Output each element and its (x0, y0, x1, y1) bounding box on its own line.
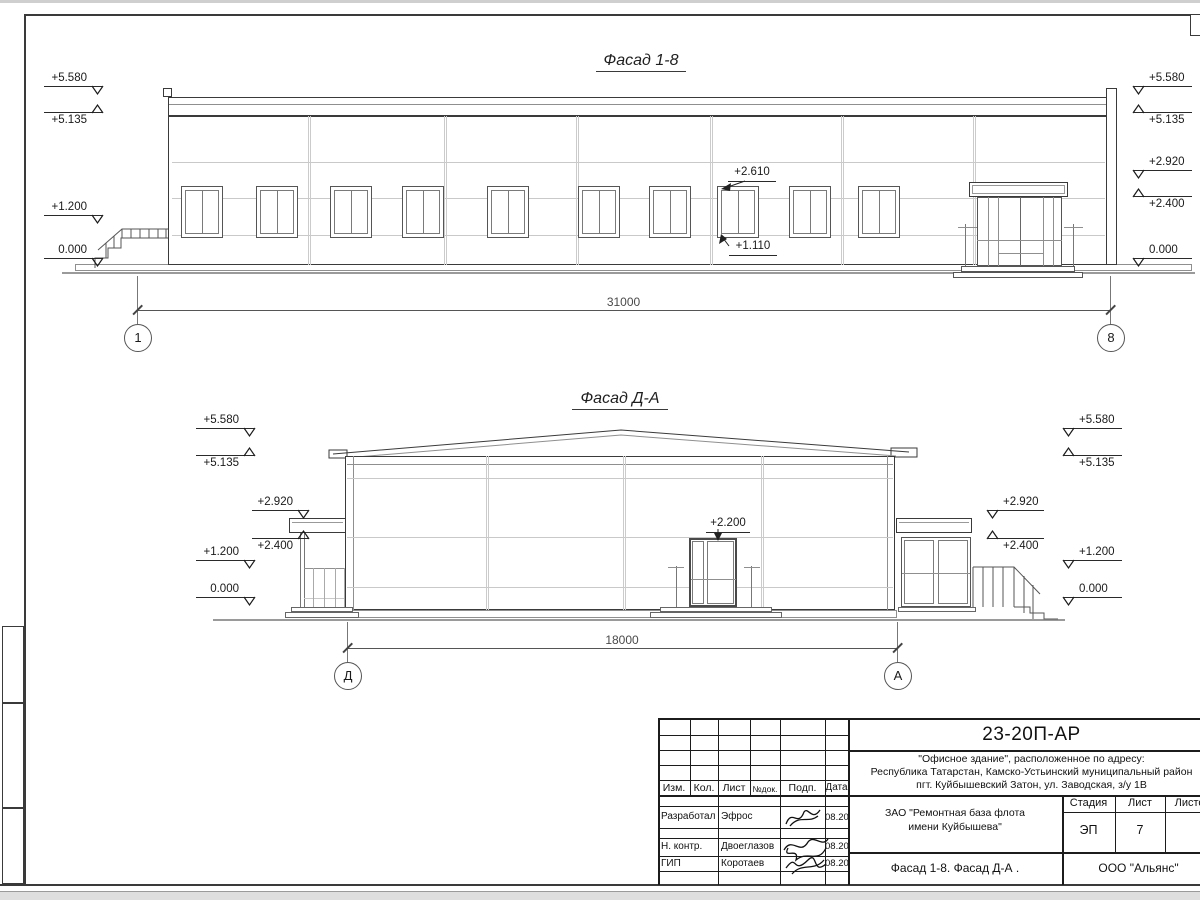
porch-railing-post (313, 568, 314, 607)
ground-line (213, 619, 1065, 621)
door-railing-post (751, 566, 752, 607)
elevation-mark: +1.200 (1064, 545, 1122, 561)
name-cell: Двоеглазов (721, 841, 779, 852)
col-ndok: №док. (750, 784, 780, 794)
storefront-mullion (988, 197, 989, 266)
grid-bubble: 8 (1097, 324, 1125, 352)
storefront-mullion (998, 197, 999, 266)
sheet-label: Лист (1115, 797, 1165, 809)
top-edge-strip (0, 0, 1200, 3)
elevation-mark: +5.580 (1064, 413, 1122, 429)
right-stair-railing (970, 556, 1058, 622)
window (789, 186, 831, 238)
window (649, 186, 691, 238)
elevation-mark: 0.000 (1134, 243, 1192, 259)
elevation-mark: +5.135 (1134, 112, 1192, 128)
elevation-mark: +1.200 (196, 545, 254, 561)
entrance-railing-rail (1064, 227, 1083, 228)
col-izm: Изм. (658, 782, 690, 794)
dimension-label: 31000 (137, 295, 1110, 309)
vestibule-canopy (896, 518, 972, 533)
door-right-leaf (707, 541, 734, 604)
door-railing-rail (744, 567, 760, 568)
under-roof-line (347, 464, 893, 465)
elevation-mark: 0.000 (44, 243, 102, 259)
facade-1-8-title-text: Фасад 1-8 (596, 52, 687, 72)
panel-joint-line (172, 198, 1105, 199)
door-bottom-rail (999, 253, 1043, 254)
entrance-canopy-inner (972, 185, 1065, 194)
porch-step (285, 612, 359, 618)
vestibule-window (938, 540, 968, 604)
address-line: пгт. Куйбышевский Затон, ул. Заводская, … (848, 779, 1200, 791)
panel-seam (444, 116, 447, 265)
door-step (650, 612, 782, 618)
elevation-mark: +2.920 (988, 495, 1044, 511)
margin-stamp-box (2, 703, 24, 808)
annotation-arrow (714, 232, 736, 248)
annotation-arrow (712, 178, 748, 192)
corner-doc-box (1190, 14, 1200, 36)
client-line: имени Куйбышева" (848, 821, 1062, 833)
doc-number: 23-20П-АР (848, 724, 1200, 746)
elevation-mark: +5.580 (196, 413, 254, 429)
door-transom (691, 579, 736, 580)
panel-joint-line (347, 537, 893, 538)
porch-canopy-inner (292, 522, 343, 523)
window (330, 186, 372, 238)
parapet-left-cap (163, 88, 172, 97)
panel-seam (623, 456, 626, 610)
annotation-arrow (710, 529, 726, 541)
panel-joint-line (347, 478, 893, 479)
entrance-railing-rail (958, 227, 977, 228)
role-cell: Н. контр. (661, 841, 717, 852)
storefront-mullion (1053, 197, 1054, 266)
storefront-transom (977, 240, 1062, 241)
drawing-sheet: Фасад 1-8 (0, 0, 1200, 900)
entrance-step (953, 272, 1083, 278)
elevation-mark: 0.000 (196, 582, 254, 598)
elevation-mark: +5.580 (44, 71, 102, 87)
window (256, 186, 298, 238)
porch-railing-post (344, 568, 345, 607)
elevation-mark: +5.135 (1064, 455, 1122, 471)
panel-seam (841, 116, 844, 265)
porch-railing-post (324, 568, 325, 607)
window (487, 186, 529, 238)
dimension-line (347, 648, 897, 649)
col-podp: Подп. (780, 782, 825, 794)
elevation-mark: +2.400 (1134, 196, 1192, 212)
sheet-title: Фасад 1-8. Фасад Д-А . (848, 861, 1062, 875)
facade-1-8-title: Фасад 1-8 (541, 52, 741, 70)
col-list: Лист (718, 782, 750, 794)
address-line: Республика Татарстан, Камско-Устьинский … (848, 766, 1200, 778)
window (578, 186, 620, 238)
corner-pilaster (1106, 88, 1117, 265)
client-line: ЗАО "Ремонтная база флота (848, 807, 1062, 819)
stage-label: Стадия (1062, 797, 1115, 809)
address-line: "Офисное здание", расположенное по адрес… (848, 753, 1200, 765)
window (402, 186, 444, 238)
elevation-mark: +1.200 (44, 200, 102, 216)
panel-seam (761, 456, 764, 610)
elevation-mark: +2.400 (988, 538, 1044, 554)
elevation-mark: +5.135 (196, 455, 254, 471)
panel-seam (308, 116, 311, 265)
col-kol: Кол. (690, 782, 718, 794)
stage-value: ЭП (1062, 823, 1115, 837)
col-data: Дата (825, 782, 848, 793)
grid-bubble: 1 (124, 324, 152, 352)
frame-top-line (24, 14, 1200, 16)
extension-line (897, 622, 898, 662)
sheet-value: 7 (1115, 823, 1165, 837)
vestibule-window (904, 540, 934, 604)
role-cell: Разработал (661, 811, 717, 822)
frame-left-line (24, 14, 26, 885)
window (858, 186, 900, 238)
facade-d-a-title: Фасад Д-А (520, 390, 720, 408)
role-cell: ГИП (661, 858, 717, 869)
frame-bottom-line (0, 884, 1200, 886)
elevation-mark: +2.400 (252, 538, 308, 554)
window-bottom-annotation: +1.110 (729, 240, 777, 256)
elevation-mark: +5.580 (1134, 71, 1192, 87)
elevation-mark: +2.920 (1134, 155, 1192, 171)
parapet-band (168, 97, 1115, 116)
panel-joint-line (172, 162, 1105, 163)
facade-d-a-title-text: Фасад Д-А (572, 390, 667, 410)
dimension-line (137, 310, 1110, 311)
dimension-label: 18000 (347, 633, 897, 647)
company-name: ООО "Альянс" (1062, 861, 1200, 875)
signature (782, 804, 824, 830)
grid-bubble: А (884, 662, 912, 690)
elevation-mark: 0.000 (1064, 582, 1122, 598)
door-leaf-split (1020, 197, 1021, 266)
door-railing-post (676, 566, 677, 607)
parapet-joint-line (169, 104, 1114, 105)
margin-stamp-box (2, 808, 24, 884)
grid-bubble: Д (334, 662, 362, 690)
vestibule-transom (902, 573, 970, 574)
panel-seam (486, 456, 489, 610)
name-cell: Эфрос (721, 811, 779, 822)
bottom-edge-strip (0, 891, 1200, 900)
name-cell: Коротаев (721, 858, 779, 869)
extension-line (1110, 276, 1111, 324)
door-railing-rail (668, 567, 684, 568)
window (181, 186, 223, 238)
entrance-railing-post (1073, 224, 1074, 266)
porch-railing-post (335, 568, 336, 607)
vestibule-platform (898, 607, 976, 612)
vestibule-canopy-inner (899, 522, 969, 523)
window-annotated (717, 186, 759, 238)
sheets-label: Листов (1165, 797, 1200, 809)
panel-joint-line (347, 587, 893, 588)
margin-stamp-box (2, 626, 24, 703)
base-platform (340, 610, 897, 618)
elevation-mark: +5.135 (44, 112, 102, 128)
storefront-mullion (1043, 197, 1044, 266)
door-left-leaf (692, 541, 704, 604)
elevation-mark: +2.920 (252, 495, 308, 511)
date-cell: 08.20 (825, 812, 848, 823)
signature (778, 834, 832, 878)
entrance-railing-post (965, 224, 966, 266)
